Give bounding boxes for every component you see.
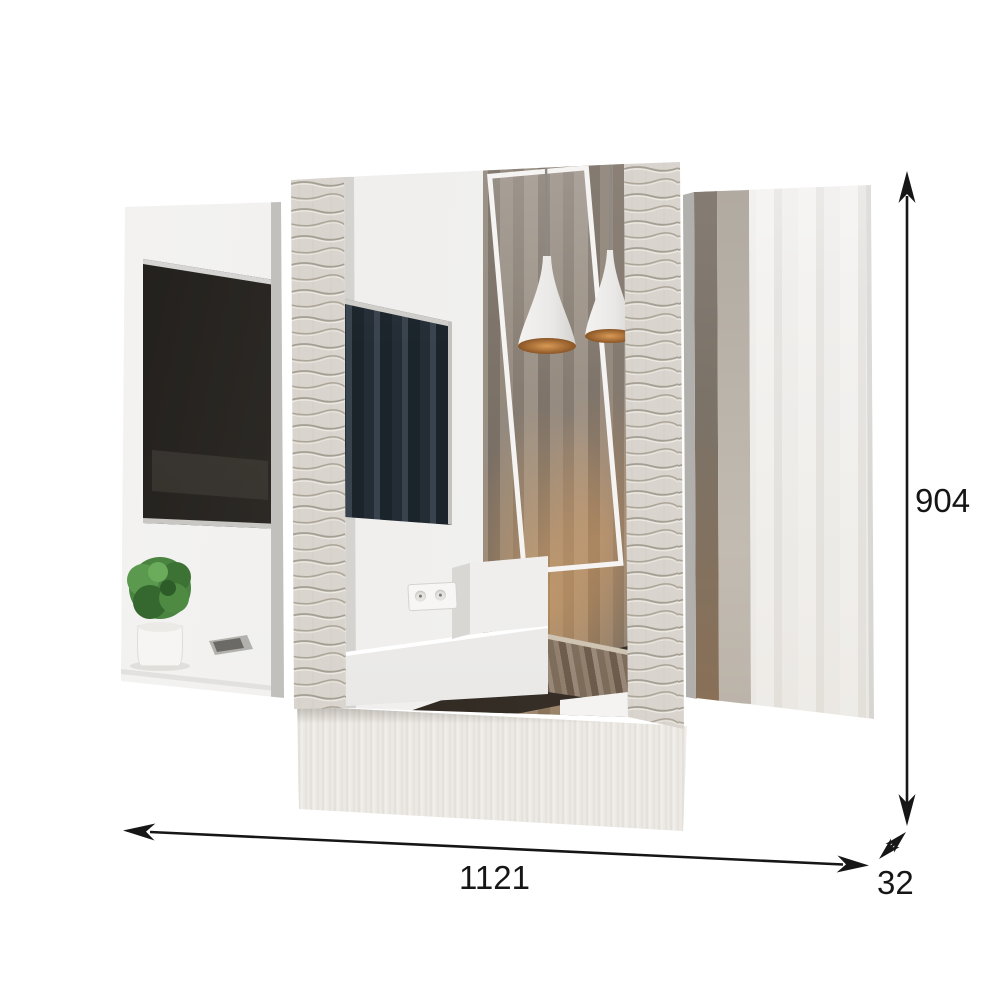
- arrow-up-right-icon: [885, 828, 910, 853]
- height-dimension-label: 904: [915, 484, 970, 517]
- left-decor-strip: [291, 177, 346, 710]
- arrow-left-icon: [123, 822, 156, 840]
- arrow-up-icon: [899, 171, 916, 203]
- base-wood-panel: [297, 706, 687, 831]
- depth-dimension-label: 32: [877, 866, 914, 899]
- outlet-socket: [435, 589, 447, 601]
- product-dimension-diagram: 1121 32 904: [0, 0, 1000, 1000]
- right-decor-strip: [624, 162, 684, 730]
- width-dimension-label: 1121: [459, 861, 530, 894]
- wall-outlet-reflection: [407, 582, 457, 612]
- outlet-socket: [415, 590, 427, 602]
- depth-dimension-line: [886, 839, 899, 852]
- arrow-down-left-icon: [875, 838, 900, 863]
- arrow-down-icon: [899, 794, 916, 826]
- potted-plant-reflection: [118, 548, 213, 673]
- arrow-right-icon: [837, 856, 870, 874]
